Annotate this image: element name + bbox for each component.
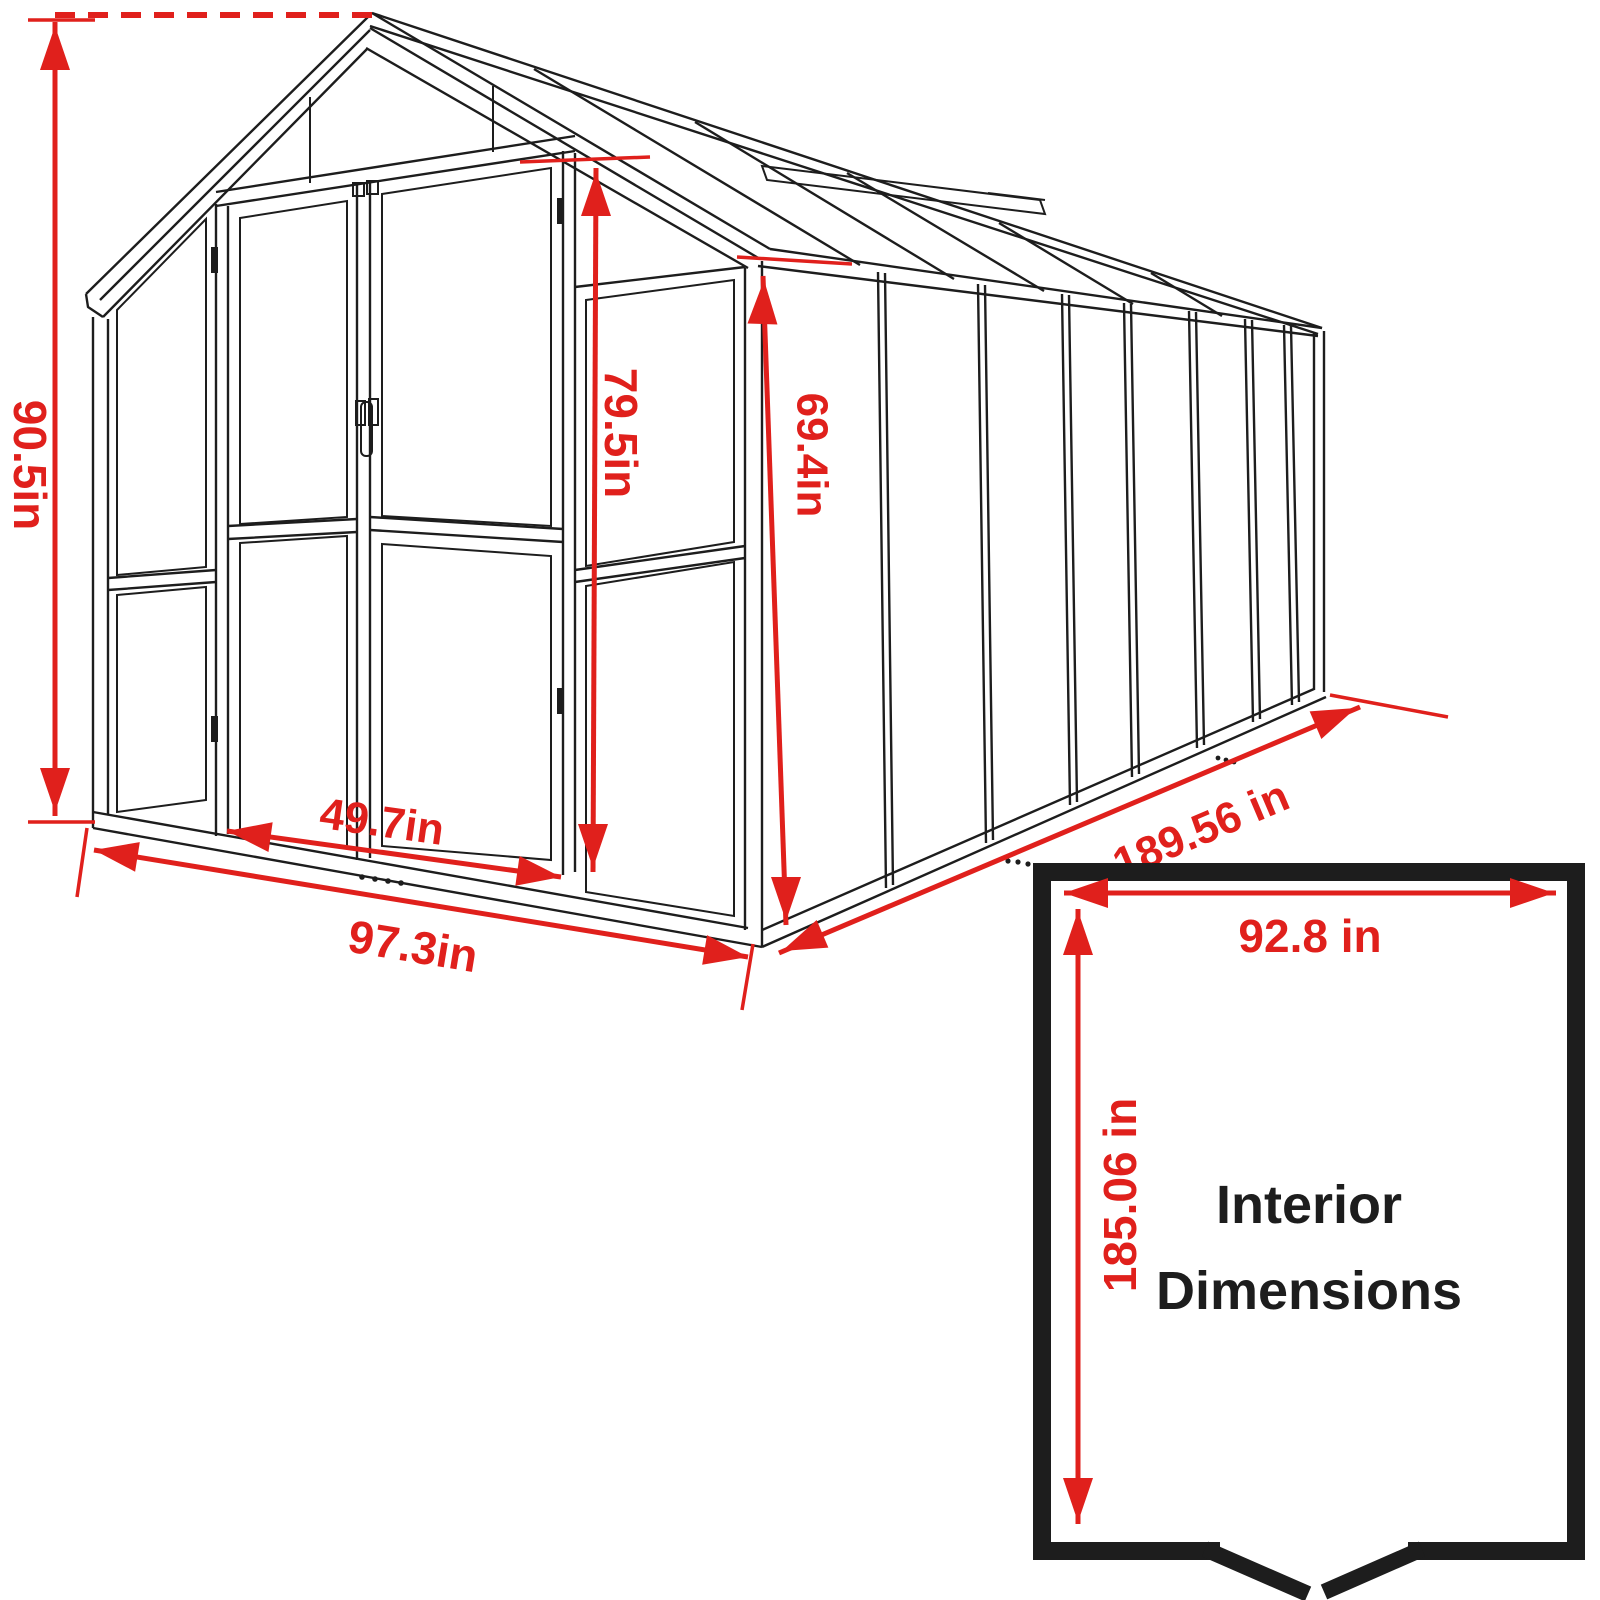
arrowhead-icon xyxy=(94,842,140,872)
arrowhead-icon xyxy=(1064,878,1108,908)
door-frame xyxy=(216,136,575,875)
arrowhead-icon xyxy=(1510,878,1554,908)
inset-width-label: 92.8 in xyxy=(1238,910,1381,962)
arrowhead-icon xyxy=(40,768,70,812)
arrowhead-icon xyxy=(1063,1478,1093,1522)
door-handle xyxy=(356,399,378,456)
dimension-door-width: 49.7in xyxy=(227,789,561,877)
arrowhead-icon xyxy=(747,280,777,324)
arrowhead-icon xyxy=(40,26,70,70)
interior-dimensions-inset: 92.8 in 185.06 in Interior Dimensions xyxy=(1042,872,1576,1594)
arrowhead-icon xyxy=(581,172,611,216)
back-corner-post xyxy=(1314,331,1324,692)
door-hinge-marks xyxy=(211,198,564,742)
greenhouse-dimension-diagram: 90.5in 79.5in 69.4in 49.7in 97.3in 189.5… xyxy=(0,0,1600,1600)
arrowhead-icon xyxy=(578,824,608,868)
side-wall xyxy=(762,272,1326,947)
inset-title-line2: Dimensions xyxy=(1156,1261,1462,1321)
inset-door-opening-flaps xyxy=(1205,1549,1422,1594)
front-left-corner-post xyxy=(93,317,108,828)
dimension-label-overall-height: 90.5in xyxy=(4,400,56,530)
left-section-panels xyxy=(117,219,206,812)
arrowhead-icon xyxy=(515,856,561,886)
arrowhead-icon xyxy=(1063,911,1093,955)
arrowhead-icon xyxy=(1310,708,1356,739)
dimension-overall-height: 90.5in xyxy=(4,15,372,822)
dimension-annotations: 90.5in 79.5in 69.4in 49.7in 97.3in 189.5… xyxy=(4,15,1448,1010)
roof xyxy=(86,13,1322,336)
door-glass-panels xyxy=(240,168,551,860)
dimension-label-front-width: 97.3in xyxy=(344,910,481,982)
dimension-label-side-wall-height: 69.4in xyxy=(788,393,837,518)
door-center-mullion xyxy=(357,182,370,860)
inset-depth-label: 185.06 in xyxy=(1094,1098,1146,1292)
greenhouse-line-drawing xyxy=(86,13,1326,947)
inset-title-line1: Interior xyxy=(1216,1175,1402,1235)
dimension-side-wall-height: 69.4in xyxy=(737,257,852,925)
dimension-label-door-height: 79.5in xyxy=(595,368,647,498)
front-right-corner-post xyxy=(745,261,762,947)
